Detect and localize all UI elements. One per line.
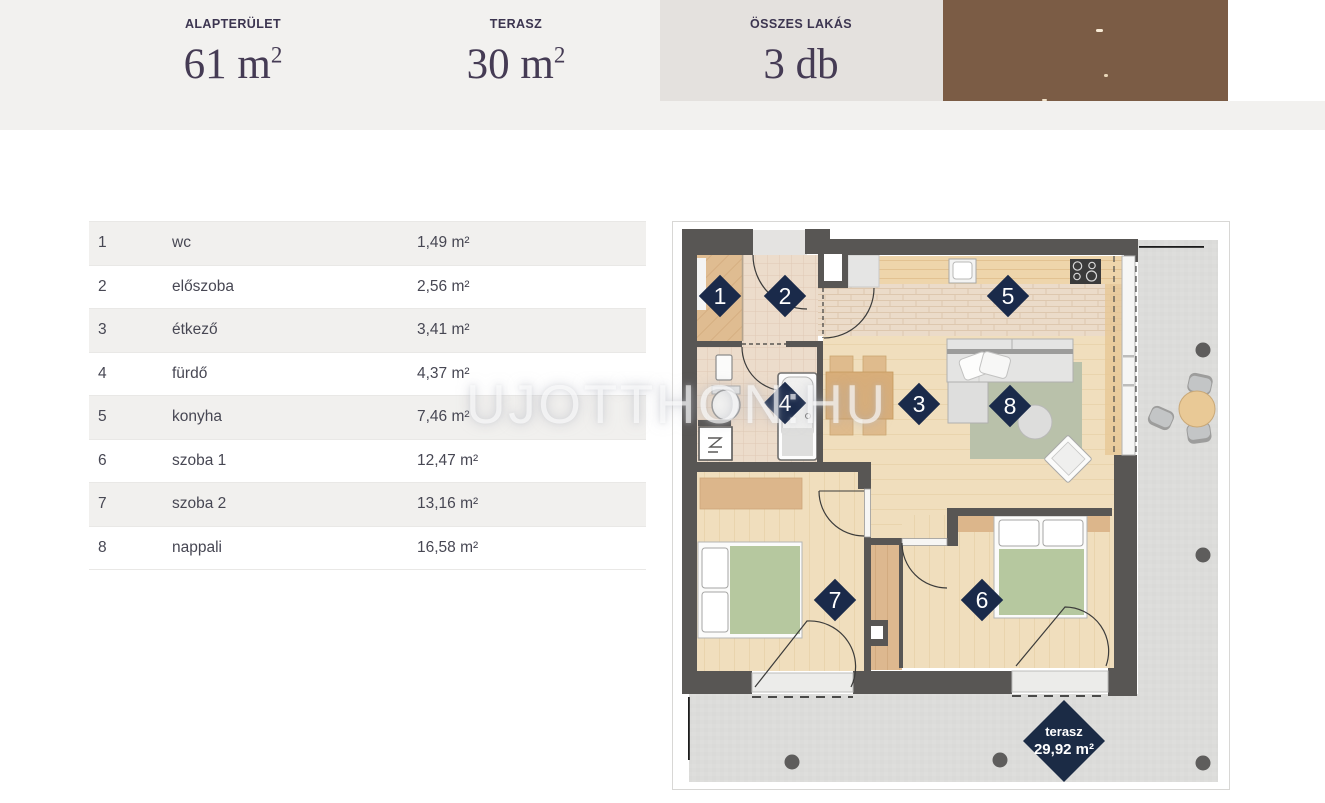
svg-text:terasz: terasz (1045, 724, 1083, 739)
svg-text:2: 2 (779, 283, 792, 309)
svg-text:6: 6 (976, 587, 989, 613)
svg-text:8: 8 (1004, 393, 1017, 419)
svg-text:29,92 m²: 29,92 m² (1034, 741, 1094, 758)
svg-text:7: 7 (829, 587, 842, 613)
svg-text:5: 5 (1002, 283, 1015, 309)
svg-text:1: 1 (714, 283, 727, 309)
